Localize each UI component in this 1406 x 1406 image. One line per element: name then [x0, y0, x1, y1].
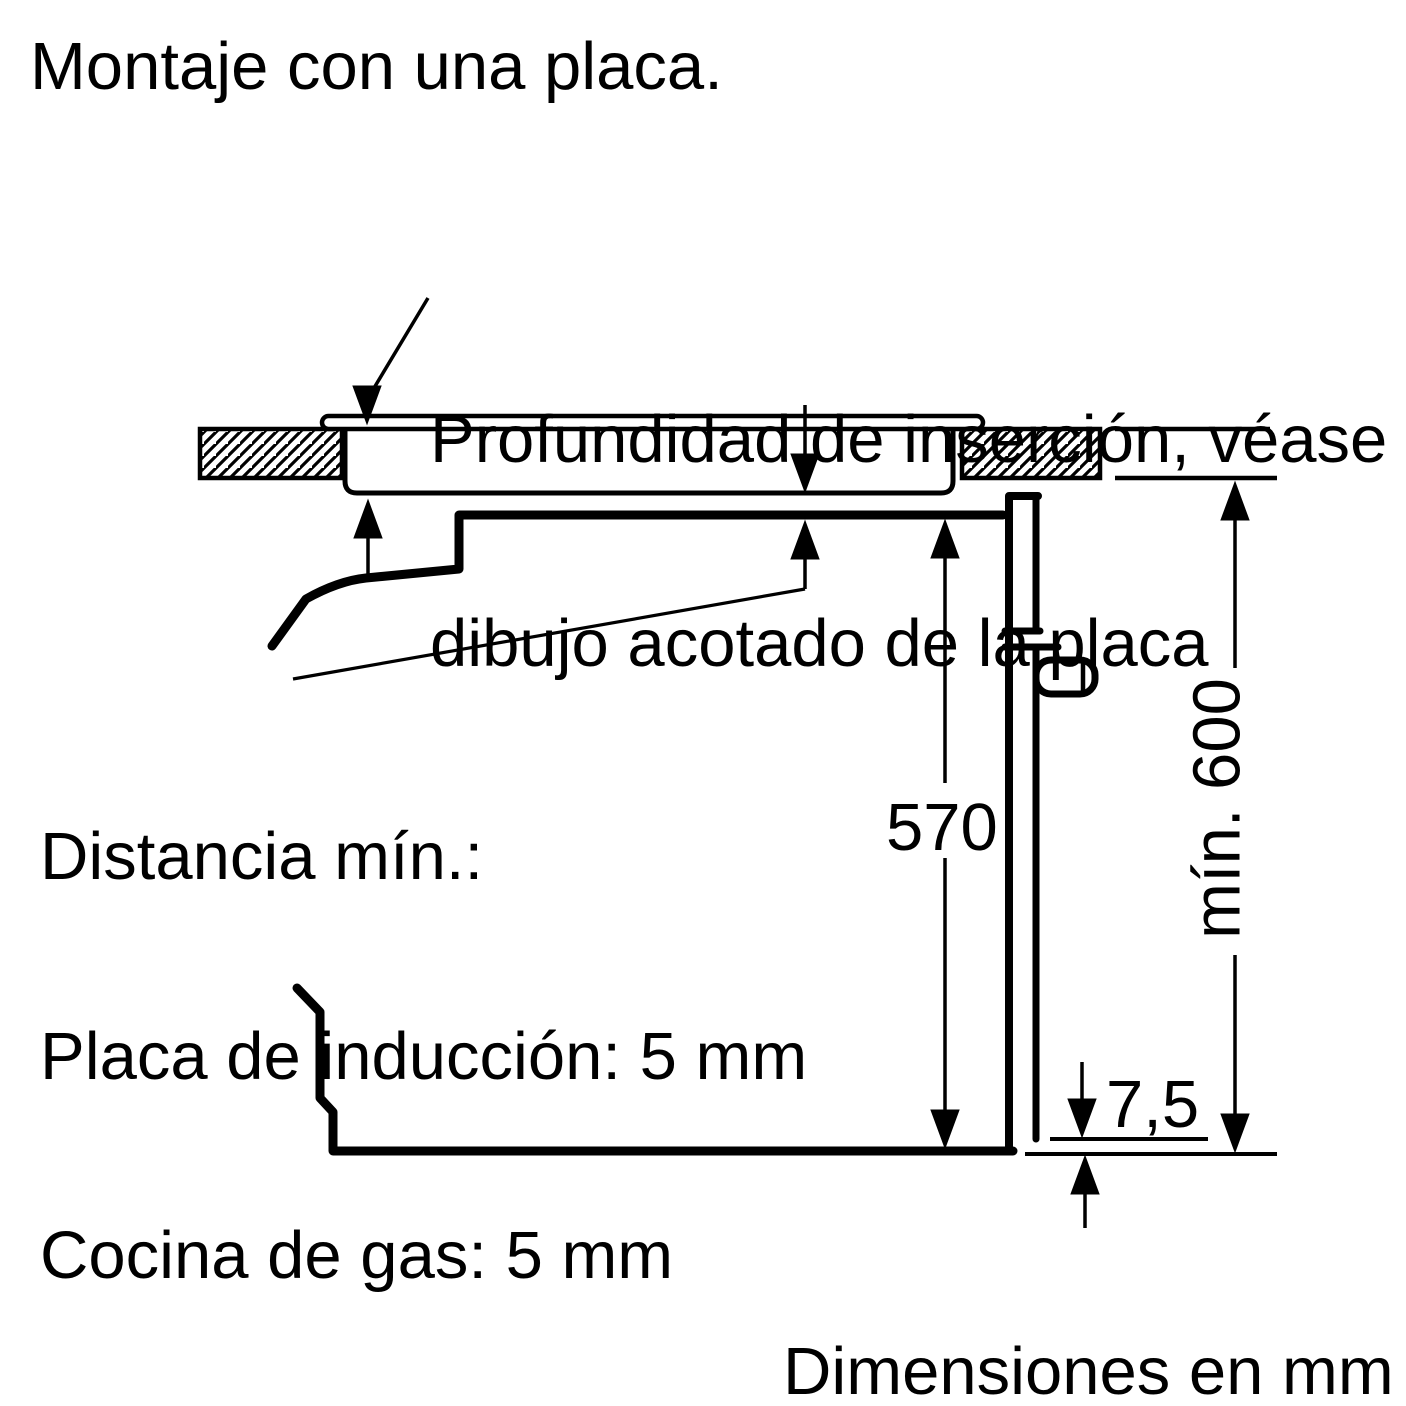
min-distance-note: Distancia mín.: Placa de inducción: 5 mm…: [40, 691, 807, 1406]
dimension-label-min-600: mín. 600: [1184, 659, 1251, 959]
insertion-depth-leader-line: [368, 298, 428, 398]
dim-600-arrowhead-down: [1221, 1114, 1249, 1152]
worktop-left-hatched-block: [200, 429, 342, 478]
page-title: Montaje con una placa.: [30, 33, 723, 101]
min-distance-note-line2: Placa de inducción: 5 mm: [40, 1024, 807, 1091]
installation-diagram-page: Montaje con una placa. Profundidad de in…: [0, 0, 1406, 1406]
insertion-depth-annotation-line1: Profundidad de inserción, véase: [430, 406, 1387, 474]
dim-75-arrowhead-up: [1071, 1156, 1099, 1194]
dimension-label-570: 570: [886, 794, 998, 862]
dimension-label-7-5: 7,5: [1106, 1071, 1199, 1139]
dim-75-arrowhead-down: [1068, 1099, 1096, 1137]
dim-570-arrowhead-down: [931, 1110, 959, 1148]
min-distance-left-arrowhead-up: [354, 500, 382, 538]
min-distance-note-line1: Distancia mín.:: [40, 824, 807, 891]
units-note: Dimensiones en mm: [783, 1338, 1394, 1406]
min-distance-note-line3: Cocina de gas: 5 mm: [40, 1223, 807, 1290]
